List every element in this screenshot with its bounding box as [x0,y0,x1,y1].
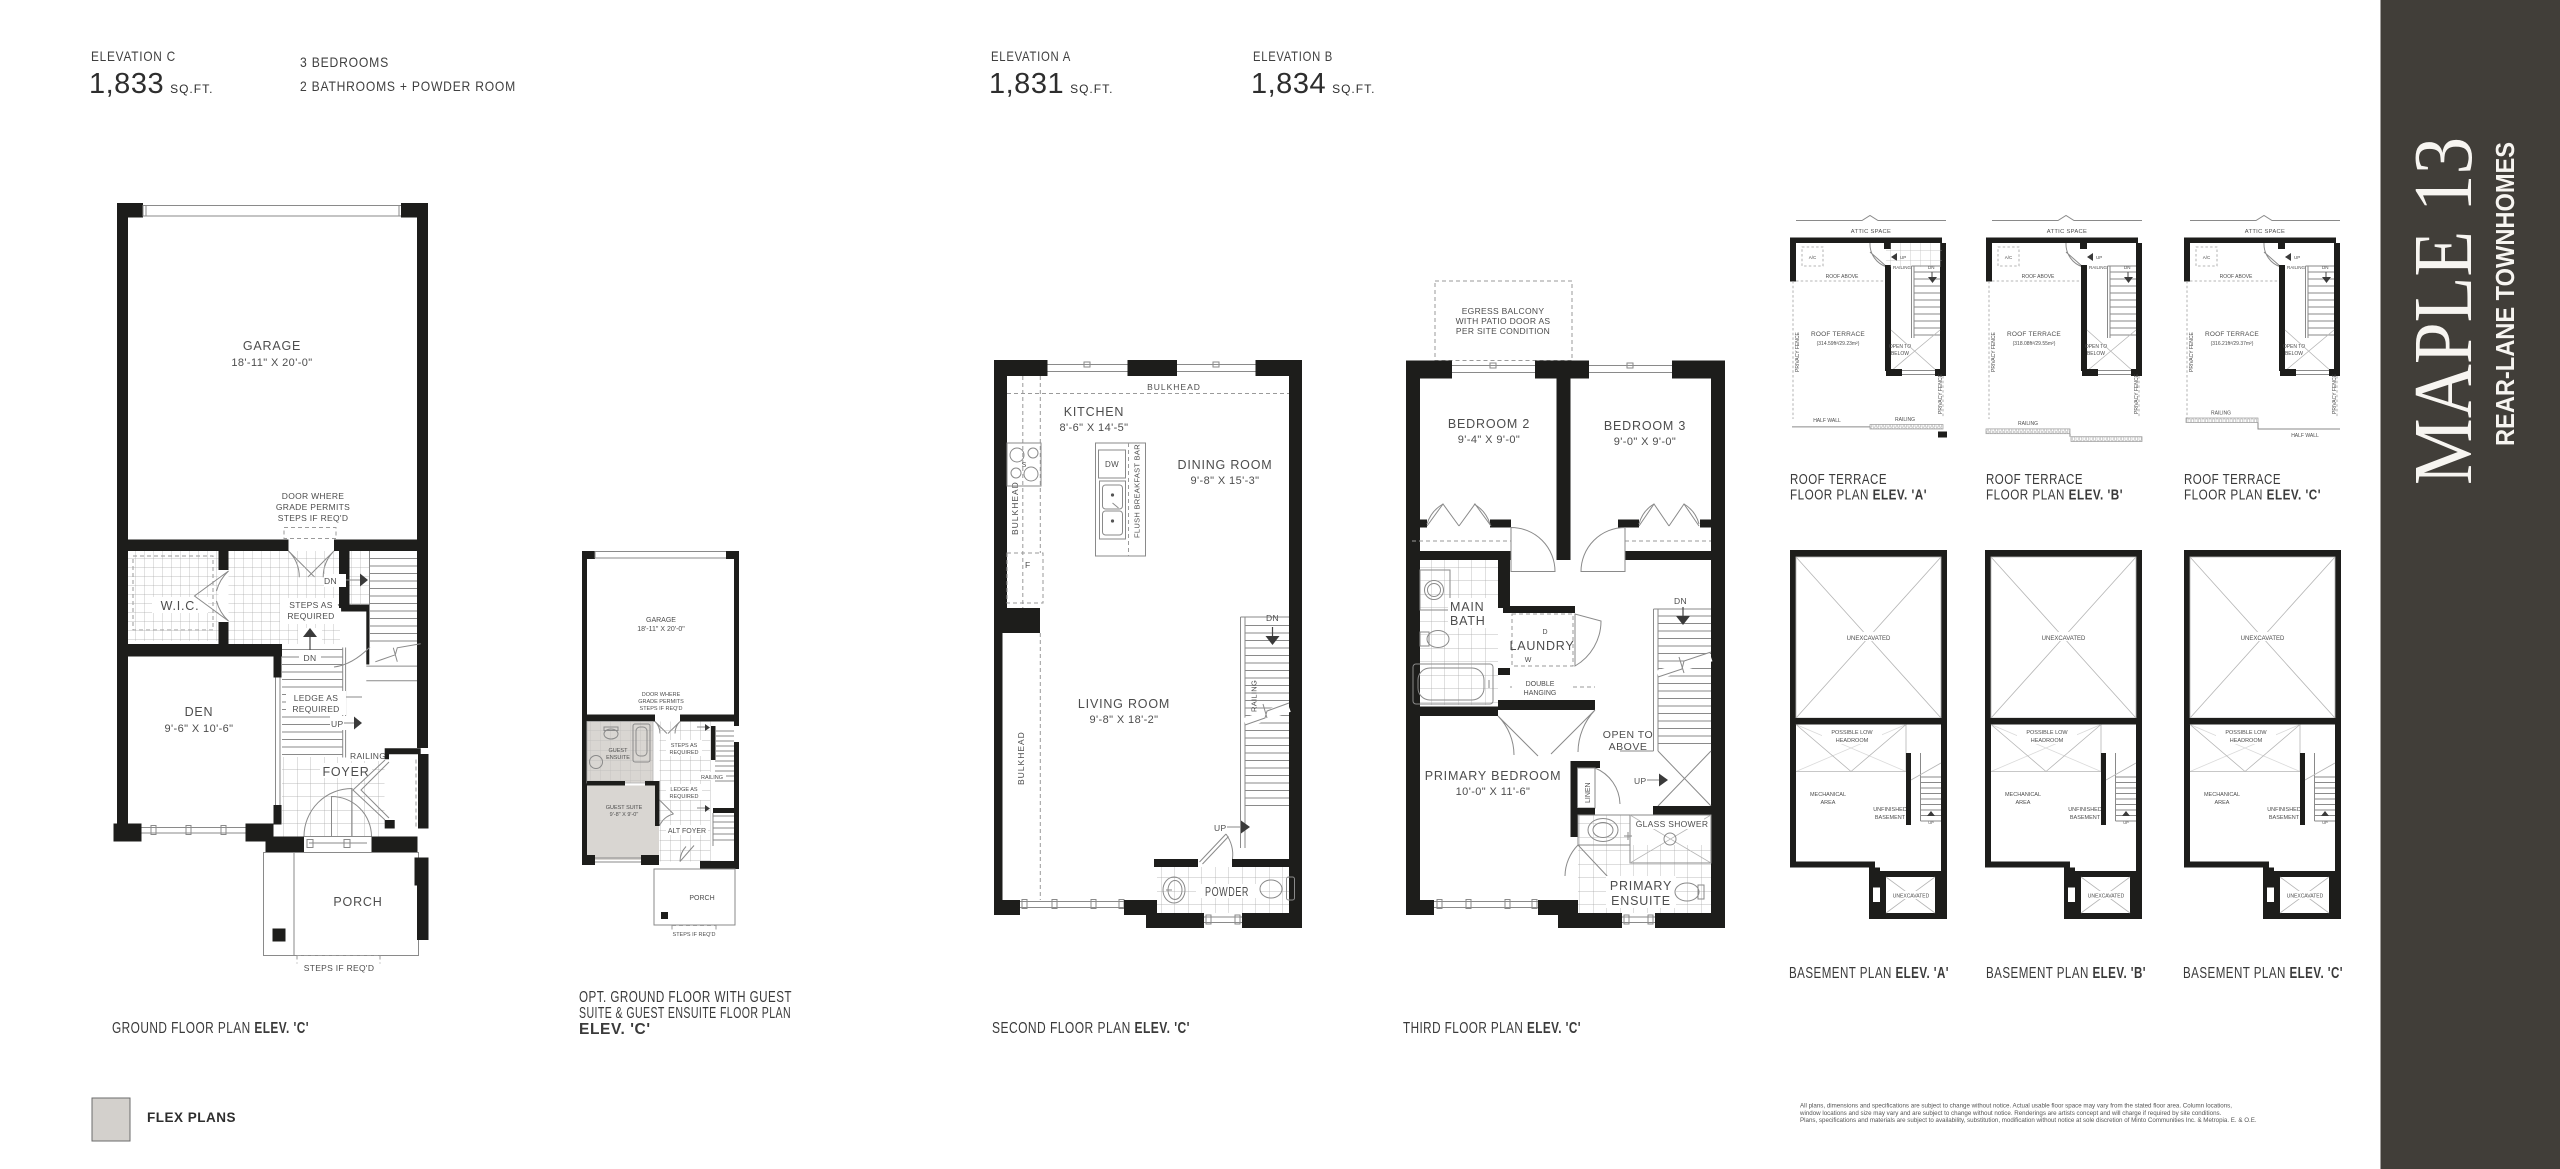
svg-text:HALF WALL: HALF WALL [1813,418,1841,424]
svg-text:ENSUITE: ENSUITE [606,755,630,761]
svg-text:W.I.C.: W.I.C. [161,599,200,613]
svg-text:RAILING: RAILING [350,751,386,761]
svg-text:RAILING: RAILING [701,775,723,781]
svg-text:ROOF TERRACE: ROOF TERRACE [1790,472,1887,488]
svg-text:BASEMENT PLAN ELEV. 'A': BASEMENT PLAN ELEV. 'A' [1789,965,1949,982]
svg-text:3 BEDROOMS: 3 BEDROOMS [300,54,389,70]
svg-text:DEN: DEN [185,705,214,719]
svg-text:UP: UP [1634,776,1646,786]
svg-text:FOYER: FOYER [322,765,369,779]
svg-text:LAUNDRY: LAUNDRY [1509,639,1574,653]
svg-text:(316.21ft²/29.37m²): (316.21ft²/29.37m²) [2211,341,2254,347]
svg-text:STEPS IF REQ'D: STEPS IF REQ'D [640,706,683,712]
svg-text:DN: DN [304,653,317,663]
svg-text:OPEN TO: OPEN TO [1603,729,1653,741]
svg-text:BASEMENT PLAN ELEV. 'B': BASEMENT PLAN ELEV. 'B' [1986,965,2146,982]
svg-text:PRIMARY BEDROOM: PRIMARY BEDROOM [1425,769,1562,783]
svg-text:WITH PATIO DOOR AS: WITH PATIO DOOR AS [1456,316,1551,326]
svg-text:8'-6" X 14'-5": 8'-6" X 14'-5" [1060,422,1129,434]
svg-text:REAR-LANE TOWNHOMES: REAR-LANE TOWNHOMES [2490,142,2520,446]
svg-text:PRIMARY: PRIMARY [1610,879,1672,893]
svg-text:LEDGE AS: LEDGE AS [670,787,698,793]
svg-text:SUITE & GUEST ENSUITE FLOOR PL: SUITE & GUEST ENSUITE FLOOR PLAN [579,1005,791,1022]
svg-text:GROUND FLOOR PLAN ELEV. 'C': GROUND FLOOR PLAN ELEV. 'C' [112,1020,309,1037]
svg-text:GARAGE: GARAGE [646,617,676,624]
svg-text:DW: DW [1105,460,1119,469]
svg-text:STEPS AS: STEPS AS [671,743,698,749]
svg-text:18'-11" X 20'-0": 18'-11" X 20'-0" [231,357,312,369]
svg-text:GUEST: GUEST [609,748,629,754]
svg-text:REQUIRED: REQUIRED [669,794,698,800]
svg-text:FLUSH BREAKFAST BAR: FLUSH BREAKFAST BAR [1133,444,1142,538]
svg-text:HALF WALL: HALF WALL [2291,433,2319,439]
svg-text:window locations and size may: window locations and size may vary and a… [1799,1110,2222,1117]
svg-text:KITCHEN: KITCHEN [1064,405,1124,419]
svg-text:9'-6" X 10'-6": 9'-6" X 10'-6" [165,723,234,735]
svg-text:FLOOR PLAN ELEV. 'A': FLOOR PLAN ELEV. 'A' [1790,488,1927,504]
svg-text:RAILING: RAILING [2211,411,2231,417]
svg-text:LINEN: LINEN [1585,782,1592,803]
svg-text:ROOF TERRACE: ROOF TERRACE [1986,472,2083,488]
svg-text:GRADE PERMITS: GRADE PERMITS [638,699,684,705]
svg-text:RAILING: RAILING [1250,680,1259,712]
svg-text:Plans, specifications and mate: Plans, specifications and materials are … [1800,1117,2257,1124]
svg-text:9'-4" X 9'-0": 9'-4" X 9'-0" [1458,434,1520,446]
svg-text:GRADE PERMITS: GRADE PERMITS [276,502,350,512]
svg-text:STEPS IF REQ'D: STEPS IF REQ'D [304,963,375,973]
svg-text:ELEVATION B: ELEVATION B [1253,48,1333,64]
svg-text:SECOND FLOOR PLAN ELEV. 'C': SECOND FLOOR PLAN ELEV. 'C' [992,1020,1190,1037]
svg-text:REQUIRED: REQUIRED [292,704,339,714]
svg-text:STEPS AS: STEPS AS [289,600,333,610]
svg-text:GARAGE: GARAGE [243,339,301,353]
svg-text:DINING ROOM: DINING ROOM [1178,458,1273,472]
svg-text:9'-0" X 9'-0": 9'-0" X 9'-0" [1614,436,1676,448]
svg-text:LIVING ROOM: LIVING ROOM [1078,697,1170,711]
svg-text:10'-0" X 11'-6": 10'-0" X 11'-6" [1456,786,1531,798]
svg-text:REQUIRED: REQUIRED [287,611,334,621]
svg-text:DN: DN [1266,613,1279,623]
svg-text:REQUIRED: REQUIRED [669,750,698,756]
svg-text:RAILING: RAILING [2018,421,2038,427]
svg-text:W: W [1525,657,1532,664]
svg-text:18'-11" X 20'-0": 18'-11" X 20'-0" [637,626,685,633]
svg-text:BULKHEAD: BULKHEAD [1010,481,1020,535]
svg-text:UP: UP [1214,823,1226,833]
svg-text:FLEX PLANS: FLEX PLANS [147,1110,236,1125]
svg-text:All plans, dimensions and spec: All plans, dimensions and specifications… [1800,1103,2232,1110]
svg-text:RAILING: RAILING [1895,417,1915,423]
svg-text:ELEV. 'C': ELEV. 'C' [579,1021,651,1038]
svg-text:PER SITE CONDITION: PER SITE CONDITION [1456,326,1550,336]
svg-text:(314.59ft²/29.23m²): (314.59ft²/29.23m²) [1817,341,1860,347]
svg-text:OPT. GROUND FLOOR WITH GUEST: OPT. GROUND FLOOR WITH GUEST [579,989,792,1006]
svg-text:STEPS IF REQ'D: STEPS IF REQ'D [673,932,716,938]
svg-text:ELEVATION C: ELEVATION C [91,48,176,64]
svg-text:FLOOR PLAN ELEV. 'B': FLOOR PLAN ELEV. 'B' [1986,488,2123,504]
svg-text:BULKHEAD: BULKHEAD [1016,731,1026,785]
svg-text:LEDGE AS: LEDGE AS [294,693,338,703]
svg-text:HANGING: HANGING [1524,690,1557,697]
svg-text:D: D [1542,629,1547,636]
svg-text:ROOF TERRACE: ROOF TERRACE [2184,472,2281,488]
svg-text:ELEVATION A: ELEVATION A [991,48,1071,64]
svg-text:9'-8" X 15'-3": 9'-8" X 15'-3" [1191,475,1260,487]
svg-text:S: S [1022,462,1027,469]
svg-text:MAIN: MAIN [1450,600,1484,614]
svg-text:BEDROOM 3: BEDROOM 3 [1604,419,1686,433]
svg-text:F: F [1025,560,1031,570]
svg-text:ALT FOYER: ALT FOYER [668,828,706,835]
svg-text:FLOOR PLAN ELEV. 'C': FLOOR PLAN ELEV. 'C' [2184,488,2321,504]
svg-text:GLASS SHOWER: GLASS SHOWER [1636,819,1709,829]
svg-text:2 BATHROOMS + POWDER ROOM: 2 BATHROOMS + POWDER ROOM [300,78,516,94]
svg-text:PORCH: PORCH [689,895,714,902]
svg-text:MAPLE 13: MAPLE 13 [2397,137,2490,485]
svg-text:PORCH: PORCH [333,895,382,909]
svg-text:DOOR WHERE: DOOR WHERE [282,491,345,501]
svg-text:(318.08ft²/29.55m²): (318.08ft²/29.55m²) [2013,341,2056,347]
svg-text:EGRESS BALCONY: EGRESS BALCONY [1462,306,1545,316]
svg-text:9'-8" X 18'-2": 9'-8" X 18'-2" [1090,714,1159,726]
svg-text:BULKHEAD: BULKHEAD [1147,382,1201,392]
svg-text:DN: DN [1674,596,1687,606]
svg-text:ENSUITE: ENSUITE [1611,894,1671,908]
svg-text:BEDROOM 2: BEDROOM 2 [1448,417,1530,431]
svg-text:POWDER: POWDER [1205,885,1249,899]
svg-text:BATH: BATH [1450,614,1486,628]
svg-text:BASEMENT PLAN ELEV. 'C': BASEMENT PLAN ELEV. 'C' [2183,965,2343,982]
svg-text:DOOR WHERE: DOOR WHERE [642,692,681,698]
svg-text:STEPS IF REQ'D: STEPS IF REQ'D [278,513,349,523]
svg-text:9'-8" X 9'-0": 9'-8" X 9'-0" [610,812,639,818]
svg-text:DN: DN [324,576,337,586]
svg-text:UP: UP [331,719,343,729]
svg-text:DOUBLE: DOUBLE [1526,681,1555,688]
svg-text:GUEST SUITE: GUEST SUITE [606,805,643,811]
svg-text:THIRD FLOOR PLAN ELEV. 'C': THIRD FLOOR PLAN ELEV. 'C' [1403,1020,1581,1037]
